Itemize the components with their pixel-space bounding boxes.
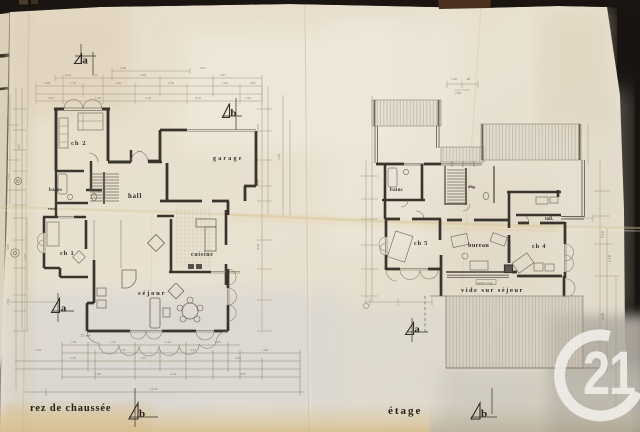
svg-text:4.43: 4.43	[190, 348, 196, 352]
svg-text:2.05: 2.05	[240, 372, 246, 376]
svg-text:1.20: 1.20	[95, 96, 101, 100]
svg-text:3.85: 3.85	[6, 244, 10, 250]
svg-text:1.98: 1.98	[95, 372, 101, 376]
svg-text:2.47: 2.47	[220, 73, 226, 77]
svg-text:4.38: 4.38	[120, 66, 126, 70]
svg-text:3.47: 3.47	[17, 144, 21, 150]
svg-text:4.14: 4.14	[170, 372, 176, 376]
svg-text:étage: étage	[388, 405, 422, 417]
svg-text:vide sur séjour: vide sur séjour	[461, 287, 524, 294]
svg-text:4.10: 4.10	[256, 244, 260, 250]
svg-text:1.84: 1.84	[222, 81, 228, 85]
svg-text:2.05: 2.05	[250, 81, 256, 85]
svg-text:2.60: 2.60	[140, 73, 146, 77]
svg-text:1.64: 1.64	[245, 96, 251, 100]
svg-text:dég.: dég.	[468, 184, 476, 189]
svg-text:2.16: 2.16	[70, 356, 76, 360]
svg-text:2.18: 2.18	[145, 96, 151, 100]
svg-text:1.08: 1.08	[44, 81, 50, 85]
svg-text:2.16: 2.16	[65, 73, 71, 77]
svg-text:2.78: 2.78	[35, 348, 41, 352]
svg-text:bains: bains	[390, 188, 403, 193]
svg-text:1.26: 1.26	[115, 81, 121, 85]
svg-text:b: b	[481, 408, 487, 420]
svg-text:vest.: vest.	[48, 206, 56, 211]
svg-text:toil.: toil.	[545, 217, 554, 222]
svg-text:6.10: 6.10	[195, 96, 201, 100]
svg-text:garage: garage	[213, 156, 244, 162]
svg-text:ch 4: ch 4	[532, 243, 546, 250]
svg-text:7.32: 7.32	[140, 356, 146, 360]
svg-text:bureau: bureau	[468, 242, 489, 249]
svg-text:cuisine: cuisine	[191, 252, 214, 258]
svg-text:a: a	[415, 325, 421, 336]
svg-text:.90: .90	[466, 77, 471, 81]
svg-text:21: 21	[583, 339, 635, 407]
svg-text:1.10: 1.10	[608, 255, 612, 262]
svg-text:hall: hall	[128, 193, 142, 200]
svg-text:1.78: 1.78	[70, 340, 76, 344]
svg-text:a: a	[61, 304, 67, 315]
svg-text:2.16: 2.16	[23, 254, 27, 260]
svg-text:ch 1: ch 1	[60, 250, 75, 257]
svg-text:2.70: 2.70	[6, 119, 10, 125]
svg-text:2.10: 2.10	[601, 231, 605, 238]
svg-text:3.30: 3.30	[277, 154, 281, 160]
svg-text:ch 5: ch 5	[414, 240, 428, 247]
svg-text:a: a	[83, 56, 89, 67]
svg-text:2.04: 2.04	[48, 96, 54, 100]
svg-text:séjour: séjour	[138, 290, 166, 297]
svg-text:4.43: 4.43	[235, 356, 241, 360]
svg-text:b: b	[231, 109, 237, 120]
svg-text:3.10: 3.10	[6, 174, 10, 180]
svg-text:4.25: 4.25	[601, 313, 605, 320]
svg-text:14.32: 14.32	[150, 387, 158, 391]
svg-text:1.60: 1.60	[262, 348, 268, 352]
svg-text:1.40: 1.40	[165, 340, 171, 344]
svg-text:garde corps: garde corps	[477, 281, 493, 285]
svg-text:1.70: 1.70	[70, 81, 76, 85]
svg-text:4.07: 4.07	[200, 66, 206, 70]
svg-text:2.10: 2.10	[168, 81, 174, 85]
svg-text:bains: bains	[49, 188, 62, 193]
svg-text:rez de chaussée: rez de chaussée	[30, 403, 111, 414]
svg-text:1.30: 1.30	[451, 77, 457, 81]
svg-text:3.95: 3.95	[256, 124, 260, 130]
svg-text:17 m²: 17 m²	[80, 333, 91, 338]
svg-text:1.35: 1.35	[110, 340, 116, 344]
svg-text:ch 2: ch 2	[71, 140, 87, 147]
svg-text:b: b	[139, 408, 145, 420]
svg-text:2.60: 2.60	[6, 299, 10, 305]
svg-text:2.20: 2.20	[455, 91, 461, 95]
